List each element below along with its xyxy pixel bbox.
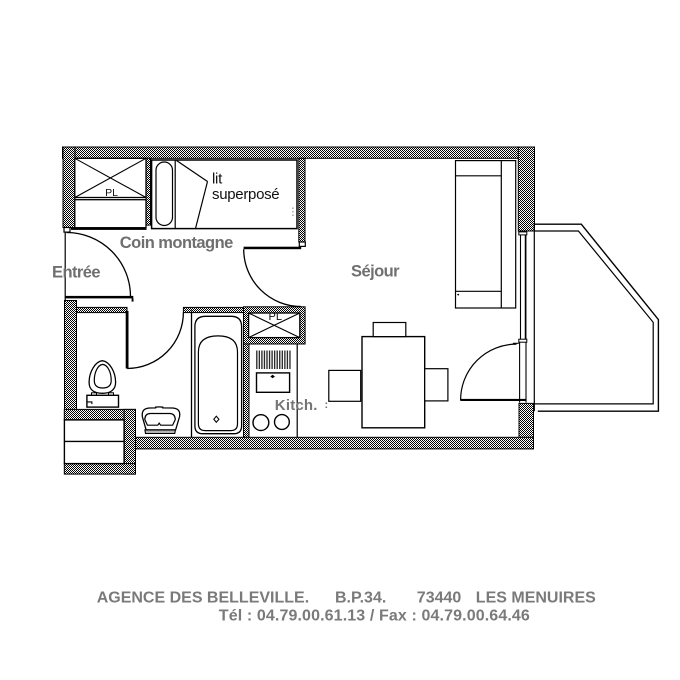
svg-text:Séjour: Séjour [351, 263, 400, 281]
svg-text:AGENCE DES BELLEVILLE.B.P.34.7: AGENCE DES BELLEVILLE.B.P.34.73440LES ME… [97, 589, 596, 606]
svg-text::: : [325, 399, 329, 411]
svg-text:Kitch.: Kitch. [275, 397, 318, 414]
svg-text:superposé: superposé [212, 186, 279, 203]
svg-text:Coin montagne: Coin montagne [120, 234, 233, 252]
svg-text:PL: PL [269, 311, 282, 323]
svg-text:lit: lit [212, 170, 223, 187]
svg-text:PL: PL [105, 187, 118, 199]
svg-text:Entrée: Entrée [52, 263, 100, 281]
svg-text:Tél : 04.79.00.61.13 / Fax : 0: Tél : 04.79.00.61.13 / Fax : 04.79.00.64… [219, 608, 530, 625]
